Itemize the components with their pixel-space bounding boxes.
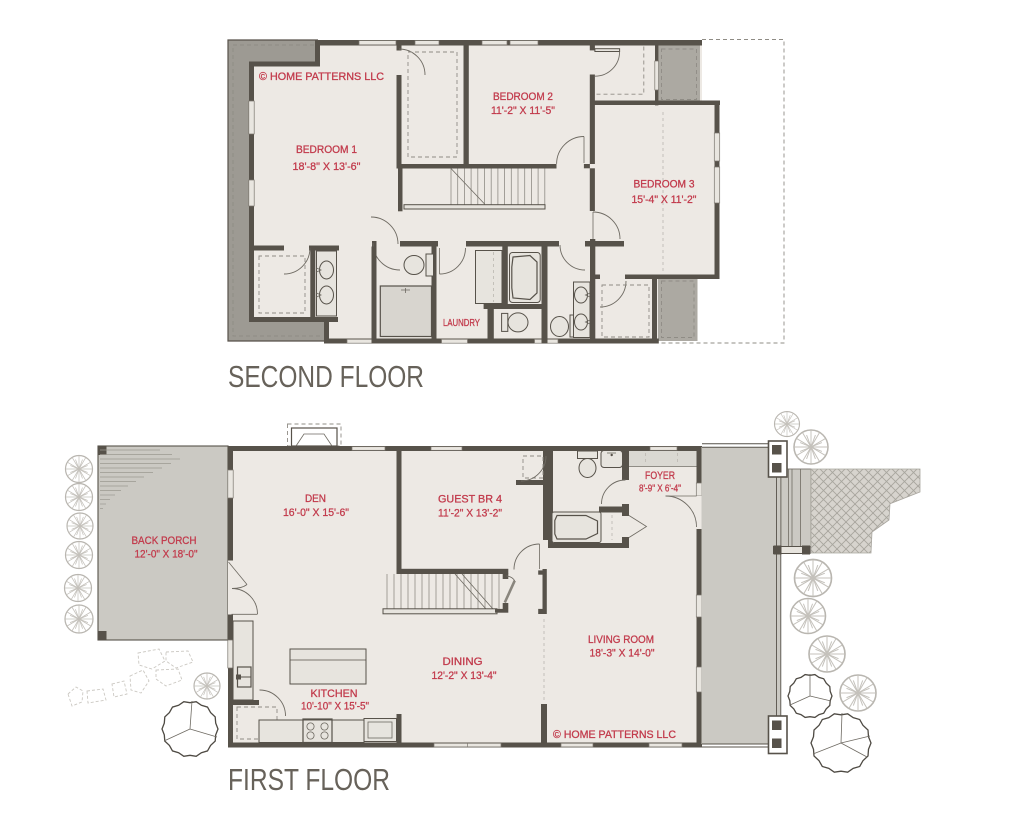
svg-text:LAUNDRY: LAUNDRY	[443, 317, 480, 329]
svg-text:DEN: DEN	[305, 493, 326, 505]
svg-text:FOYER: FOYER	[645, 470, 675, 482]
svg-text:18'-3" X 14'-0": 18'-3" X 14'-0"	[590, 647, 655, 659]
svg-text:© HOME PATTERNS LLC: © HOME PATTERNS LLC	[259, 71, 384, 83]
svg-text:15'-4" X 11'-2": 15'-4" X 11'-2"	[632, 194, 697, 206]
svg-text:12'-0" X 18'-0": 12'-0" X 18'-0"	[135, 548, 198, 560]
svg-text:10'-10" X 15'-5": 10'-10" X 15'-5"	[301, 700, 369, 712]
svg-text:18'-8" X 13'-6": 18'-8" X 13'-6"	[293, 161, 361, 173]
svg-text:DINING: DINING	[443, 656, 483, 668]
svg-text:BACK PORCH: BACK PORCH	[132, 535, 197, 547]
svg-text:FIRST FLOOR: FIRST FLOOR	[228, 763, 390, 797]
svg-text:BEDROOM 3: BEDROOM 3	[634, 178, 695, 190]
svg-text:11'-2" X 13'-2": 11'-2" X 13'-2"	[438, 508, 502, 520]
svg-text:SECOND FLOOR: SECOND FLOOR	[228, 360, 424, 394]
svg-text:BEDROOM 2: BEDROOM 2	[493, 91, 553, 103]
svg-text:KITCHEN: KITCHEN	[311, 688, 358, 700]
svg-text:GUEST BR 4: GUEST BR 4	[438, 494, 502, 506]
svg-text:© HOME PATTERNS LLC: © HOME PATTERNS LLC	[553, 729, 676, 741]
svg-text:16'-0" X 15'-6": 16'-0" X 15'-6"	[283, 507, 349, 519]
svg-text:8'-9" X 6'-4": 8'-9" X 6'-4"	[639, 483, 681, 494]
svg-text:11'-2" X 11'-5": 11'-2" X 11'-5"	[491, 105, 555, 117]
svg-text:BEDROOM 1: BEDROOM 1	[296, 144, 357, 156]
svg-text:12'-2" X 13'-4": 12'-2" X 13'-4"	[432, 670, 497, 682]
svg-text:LIVING ROOM: LIVING ROOM	[588, 634, 654, 646]
